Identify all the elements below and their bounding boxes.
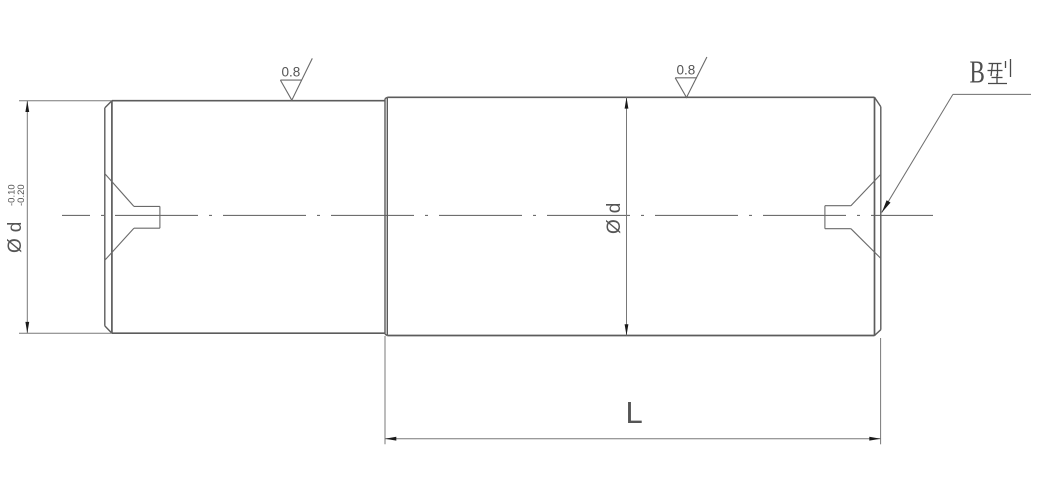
svg-text:0.8: 0.8 xyxy=(677,63,696,78)
svg-text:L: L xyxy=(626,395,643,430)
svg-text:-0.20: -0.20 xyxy=(16,184,27,206)
svg-text:Ød: Ød xyxy=(5,216,26,253)
svg-text:B: B xyxy=(970,55,985,91)
svg-text:0.8: 0.8 xyxy=(282,65,301,80)
svg-text:Ød: Ød xyxy=(604,197,625,234)
